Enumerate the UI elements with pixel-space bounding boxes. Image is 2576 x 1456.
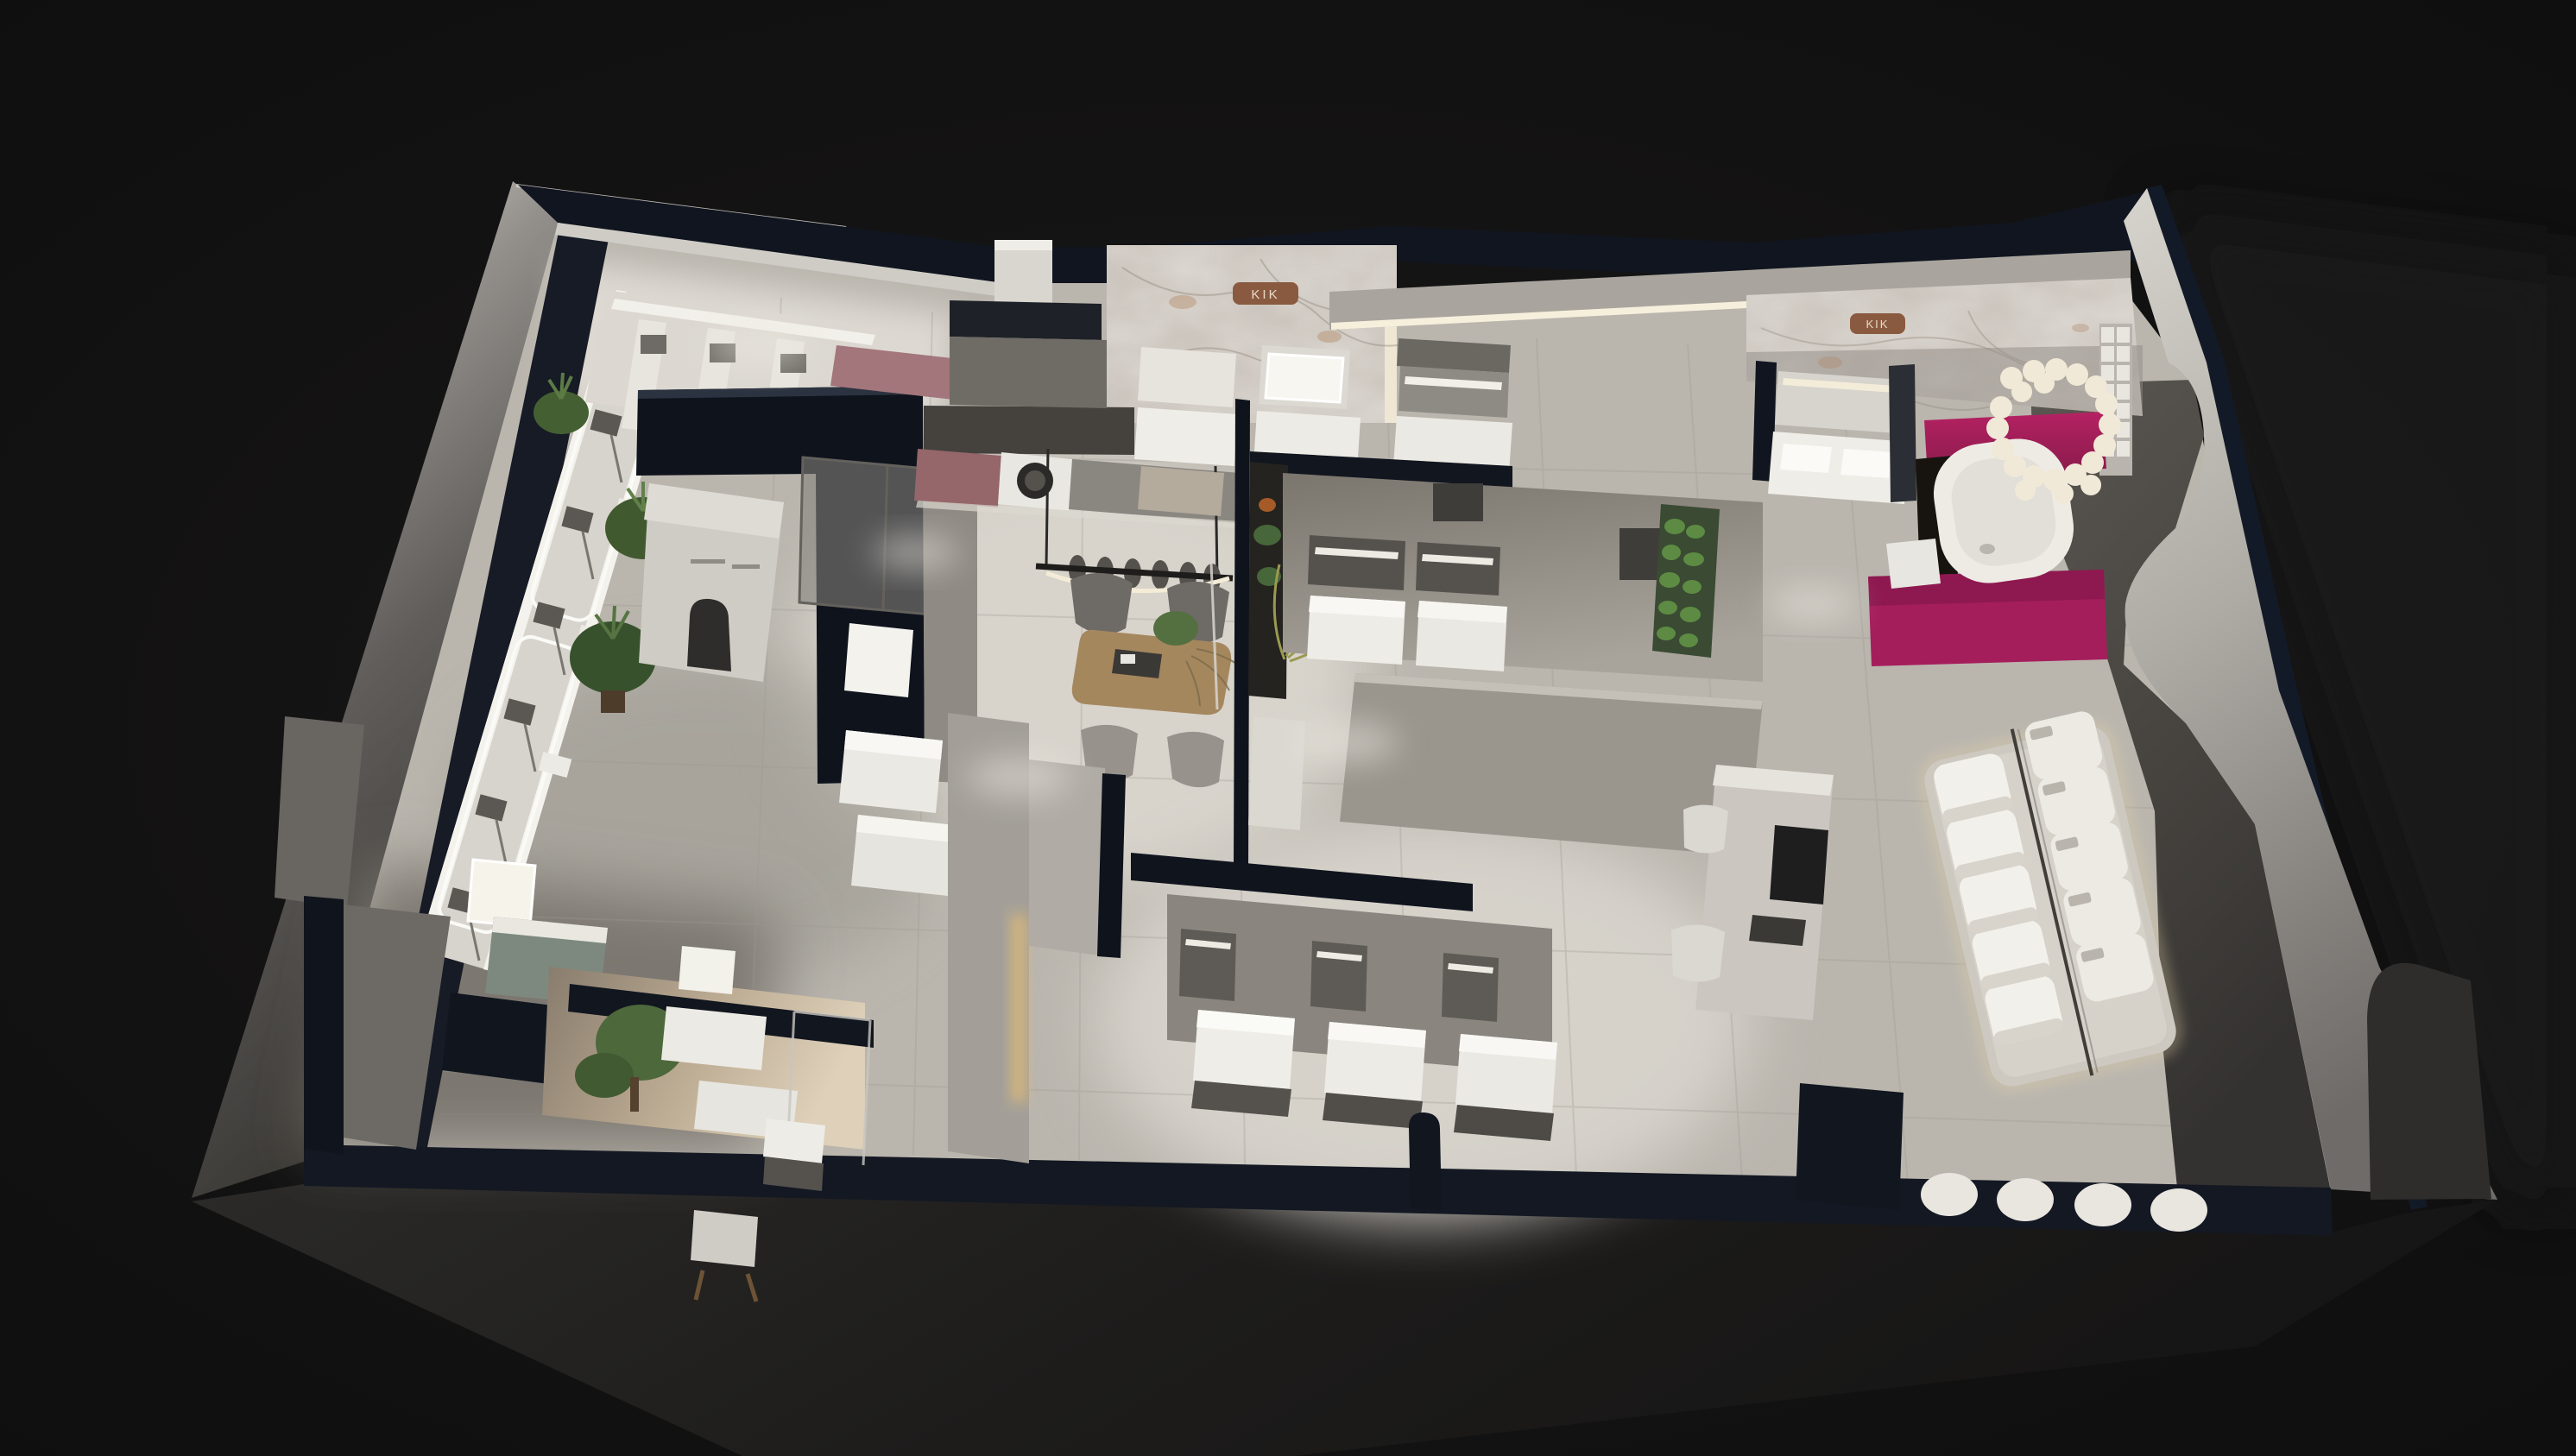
svg-text:KIK: KIK xyxy=(1251,287,1279,302)
svg-text:KIK: KIK xyxy=(1866,318,1890,331)
